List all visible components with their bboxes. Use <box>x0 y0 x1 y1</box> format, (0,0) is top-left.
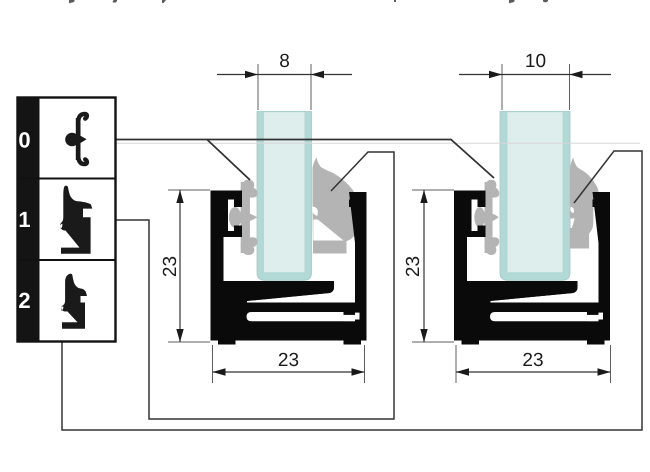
svg-text:2: 2 <box>18 288 30 313</box>
svg-text:23: 23 <box>160 256 181 277</box>
svg-text:23: 23 <box>403 256 424 277</box>
svg-text:8: 8 <box>279 51 290 72</box>
svg-text:23: 23 <box>522 350 543 371</box>
svg-text:1: 1 <box>18 207 30 232</box>
svg-text:10: 10 <box>525 51 546 72</box>
svg-text:23: 23 <box>278 350 299 371</box>
svg-text:0: 0 <box>18 127 30 152</box>
